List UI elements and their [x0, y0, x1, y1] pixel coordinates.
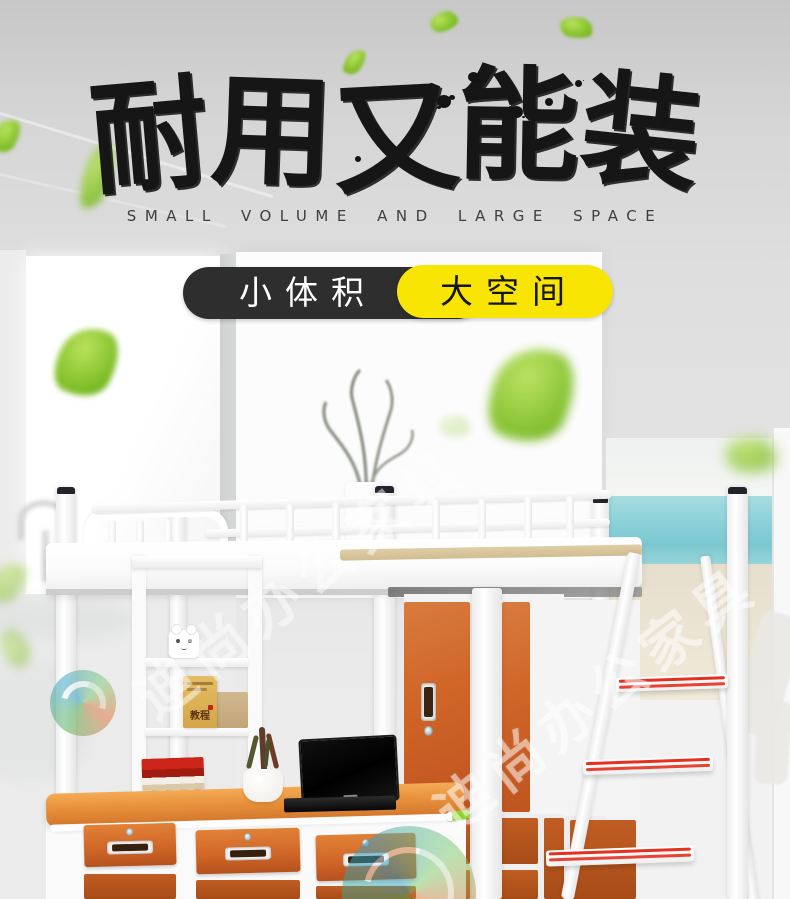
shelf-board: [146, 658, 248, 667]
red-books-stack: [141, 757, 204, 791]
title-char: 用: [209, 62, 336, 203]
shelf-top: [132, 556, 262, 568]
bed-leg-front: [472, 588, 502, 899]
beach-chair-leg: [753, 699, 790, 785]
hero-subtitle: SMALL VOLUME AND LARGE SPACE: [0, 207, 790, 225]
wood-box: [216, 692, 248, 728]
flower-pot: [243, 769, 283, 802]
cat-mug: [168, 629, 200, 659]
desk-drawer: [195, 828, 300, 875]
desk-drawer-lower: [84, 874, 176, 899]
badge-small-volume-label: 小体积: [228, 267, 388, 319]
wardrobe-keyhole: [424, 726, 433, 736]
leaf: [558, 14, 595, 41]
guardrail-spindle: [478, 499, 486, 543]
brand-logo-watermark: [50, 670, 116, 736]
drawer-keyhole: [126, 828, 133, 836]
drawer-handle: [225, 846, 271, 860]
cactus-plant: [246, 727, 282, 773]
title-char: 耐: [85, 64, 214, 210]
desk-drawer-lower: [196, 880, 300, 899]
ladder-post-right: [727, 487, 748, 899]
guardrail-spindle: [566, 496, 574, 542]
guardrail-spindle: [432, 500, 440, 544]
furniture-promo-banner: 教程 迪尚办公家具 迪尚办公家具: [0, 0, 790, 899]
wardrobe-door-left: [404, 602, 470, 812]
leaf: [428, 9, 460, 35]
wardrobe-door-right: [502, 602, 530, 812]
yellow-book: 教程: [183, 676, 217, 728]
badge-large-space-label: 大空间: [424, 266, 594, 318]
title-char: 装: [575, 59, 707, 207]
wardrobe-side: [530, 602, 566, 814]
guardrail-spindle: [524, 497, 532, 542]
laptop-base: [284, 796, 396, 813]
laptop-screen: [298, 734, 399, 805]
shelf-board: [146, 728, 248, 736]
hero-title: 耐 用 又 能 装: [0, 62, 790, 199]
under-deck-line: [46, 589, 388, 595]
guardrail-spindle: [332, 503, 340, 545]
drawer-handle: [107, 840, 153, 854]
title-char: 又: [329, 68, 462, 211]
wardrobe-handle: [421, 683, 436, 721]
desk-drawer: [83, 823, 176, 867]
drawer-keyhole: [244, 833, 251, 841]
